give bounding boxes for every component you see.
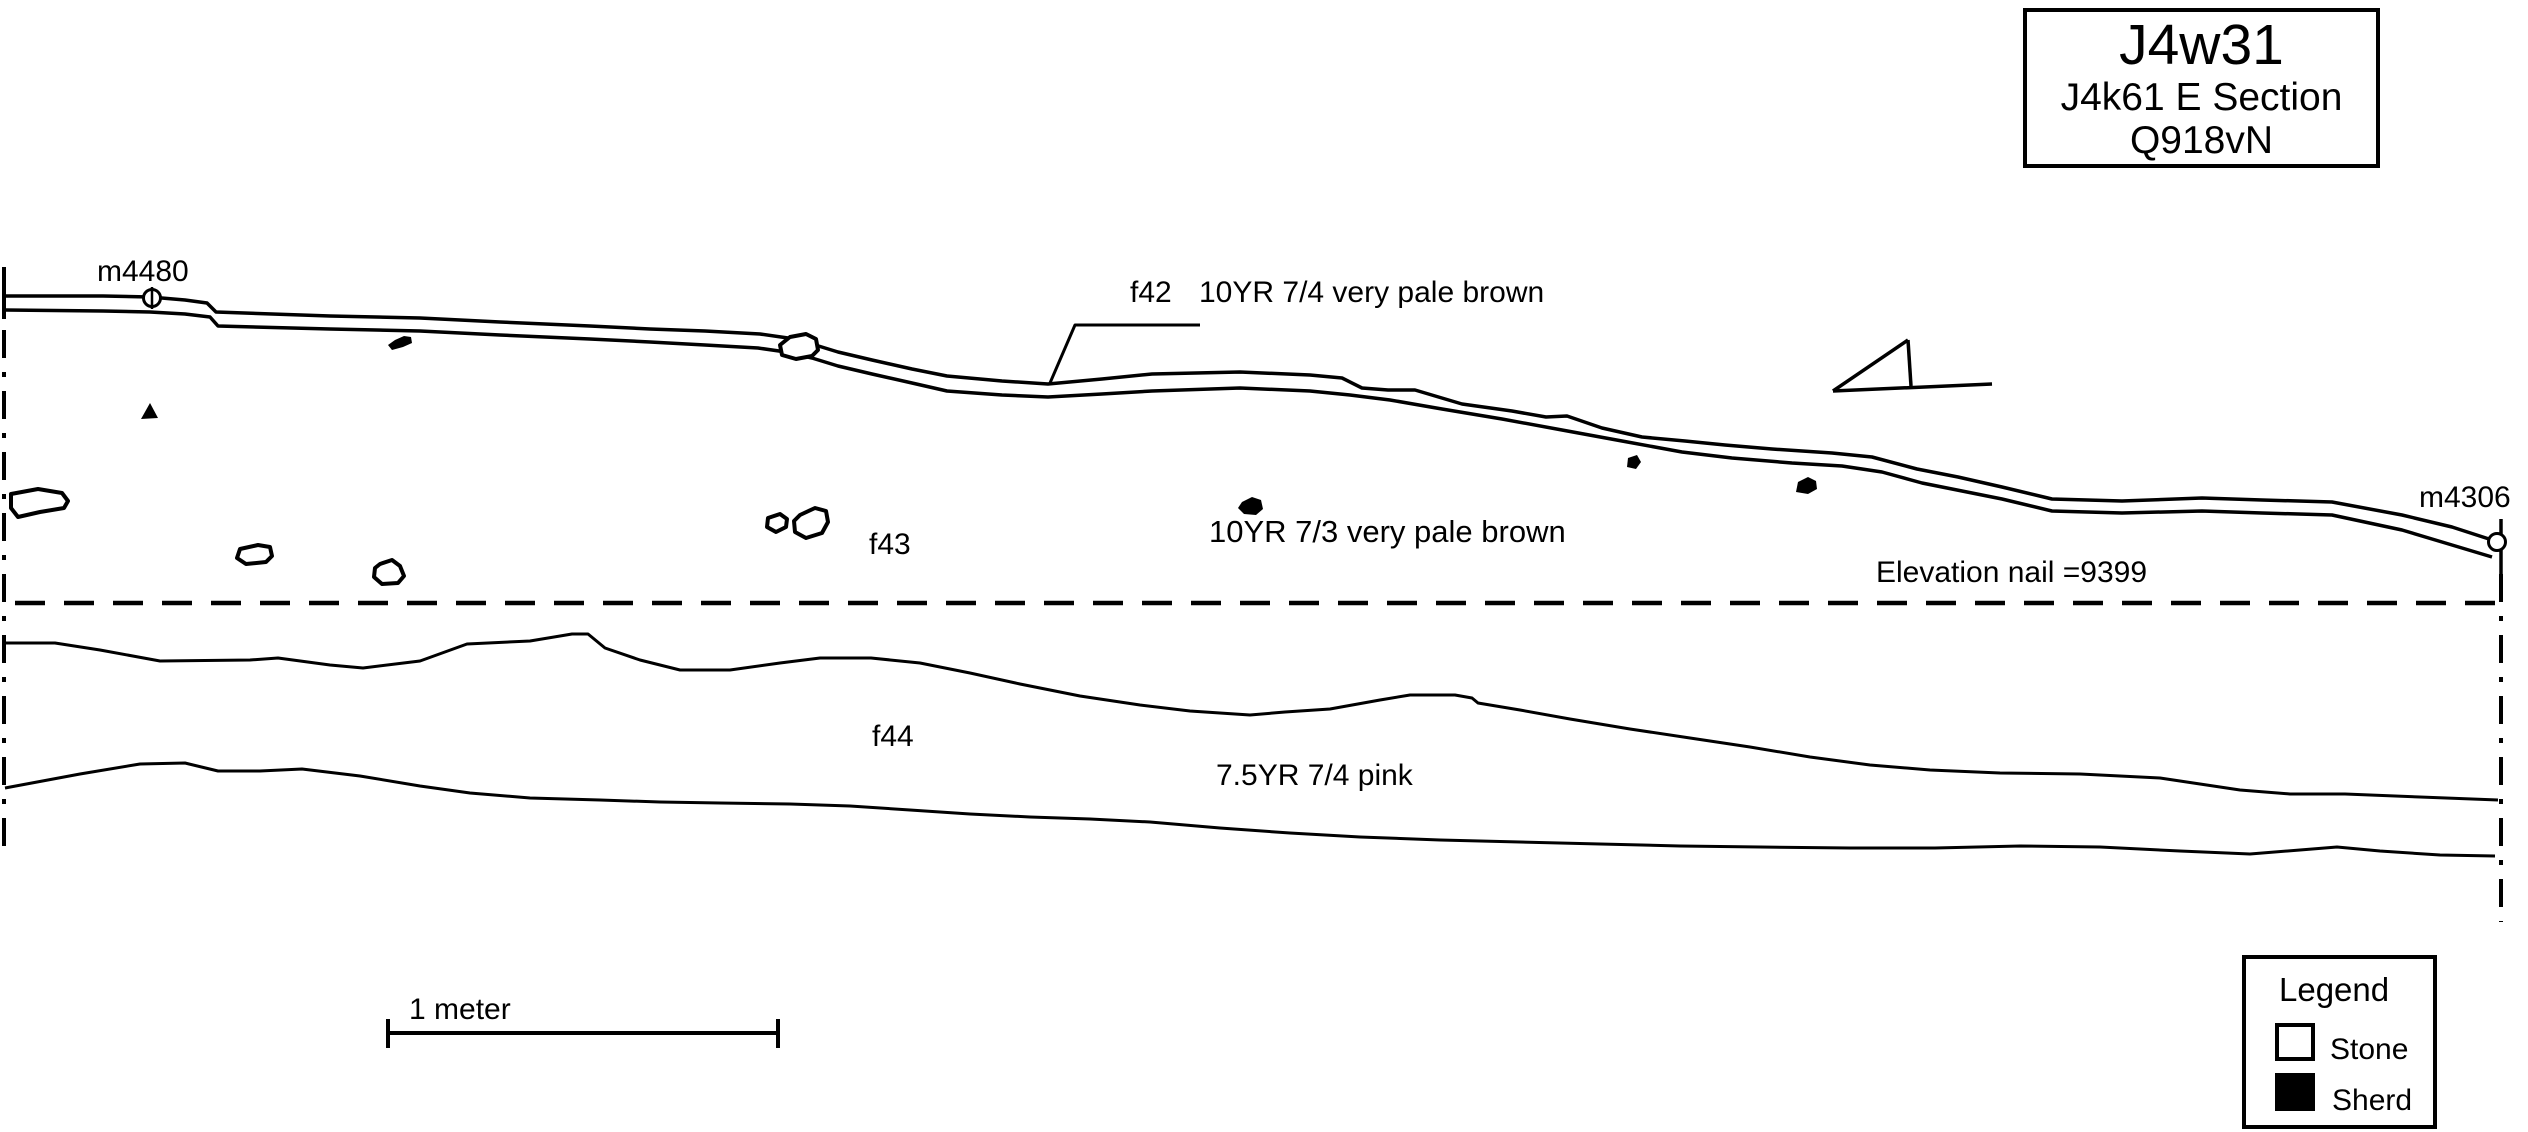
- sherds-group: [141, 336, 1817, 515]
- drawing-subtitle: J4k61 E Section: [2027, 76, 2376, 119]
- title-box: J4w31 J4k61 E Section Q918vN: [2023, 8, 2380, 168]
- legend-item-sherd: Sherd: [2332, 1084, 2412, 1118]
- nail-marker-right-icon: [2489, 534, 2506, 551]
- sherd-icon: [1627, 455, 1641, 469]
- sherd-icon: [1238, 497, 1263, 515]
- feature-label-f43: f43: [869, 528, 911, 561]
- stone-swatch-icon: [2275, 1023, 2315, 1061]
- sherd-icon: [141, 403, 158, 419]
- munsell-label-f43: 10YR 7/3 very pale brown: [1209, 515, 1566, 549]
- feature-label-f44: f44: [872, 720, 914, 753]
- legend-item-stone: Stone: [2330, 1033, 2408, 1067]
- legend-box: Legend Stone Sherd: [2242, 955, 2437, 1129]
- stone-icon: [794, 508, 828, 538]
- drawing-title: J4w31: [2027, 14, 2376, 76]
- legend-title: Legend: [2279, 971, 2389, 1009]
- section-linework: [0, 0, 2528, 1132]
- sherd-icon: [1796, 477, 1817, 494]
- stone-icon: [374, 560, 404, 584]
- drawing-locus: Q918vN: [2027, 119, 2376, 162]
- section-drawing: m4480 m4306 f42 10YR 7/4 very pale brown…: [0, 0, 2528, 1132]
- nail-marker-left-icon: [144, 287, 161, 309]
- elevation-note: Elevation nail =9399: [1876, 556, 2147, 589]
- stone-icon: [237, 545, 272, 564]
- stone-icon: [11, 489, 68, 517]
- munsell-label-f42: 10YR 7/4 very pale brown: [1199, 276, 1544, 309]
- nail-label-m4306: m4306: [2419, 481, 2511, 514]
- stones-group: [11, 334, 828, 584]
- triangle-marker-icon: [1833, 340, 1992, 391]
- scale-bar-label: 1 meter: [409, 993, 511, 1026]
- sherd-swatch-icon: [2275, 1073, 2315, 1111]
- feature-label-f42: f42: [1130, 276, 1172, 309]
- stone-icon: [767, 514, 787, 532]
- munsell-label-f44: 7.5YR 7/4 pink: [1216, 759, 1413, 792]
- sherd-icon: [388, 336, 412, 350]
- nail-label-m4480: m4480: [97, 255, 189, 288]
